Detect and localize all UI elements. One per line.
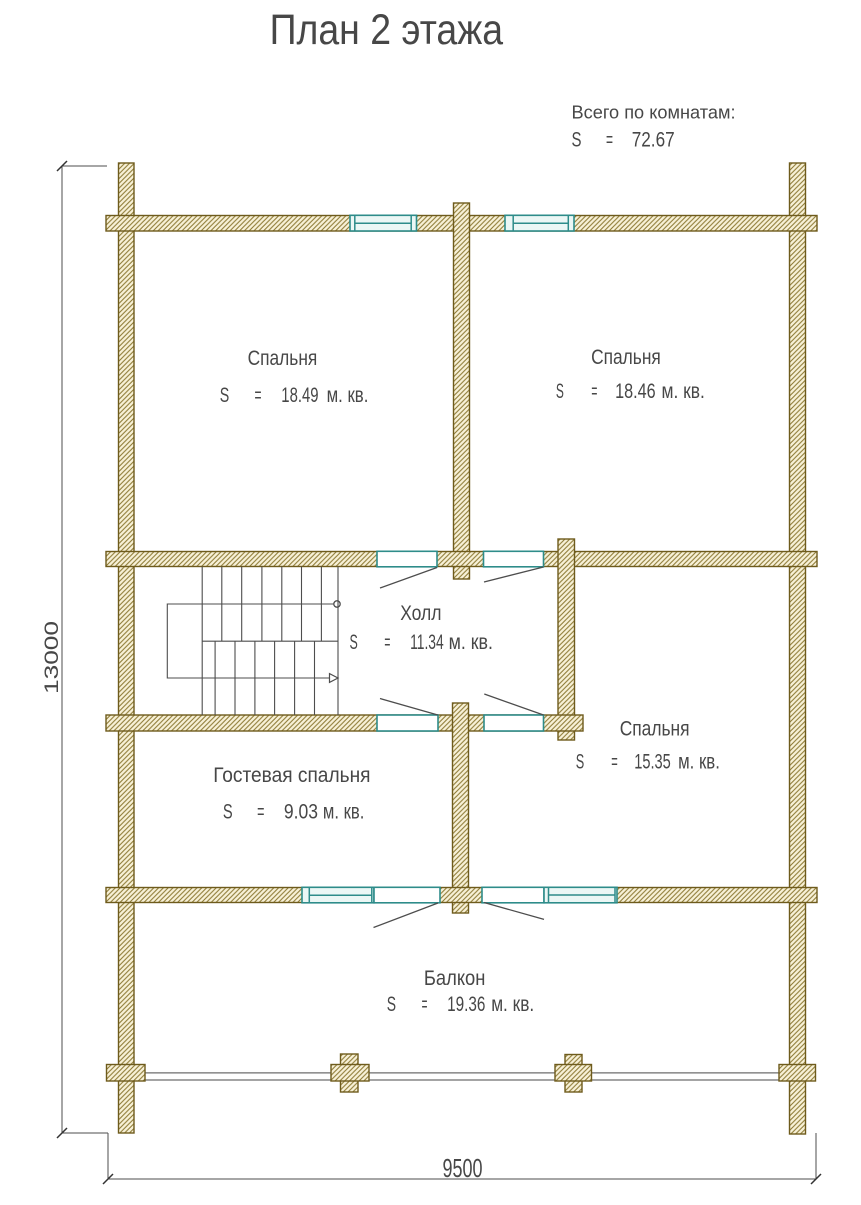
svg-text:18.49: 18.49 xyxy=(281,384,318,407)
svg-text:Балкон: Балкон xyxy=(424,967,486,990)
svg-text:Спальня: Спальня xyxy=(591,346,661,369)
svg-text:=: = xyxy=(384,631,390,654)
svg-text:S: S xyxy=(572,128,582,151)
svg-text:=: = xyxy=(611,751,618,774)
svg-text:=: = xyxy=(591,380,597,403)
svg-text:м. кв.: м. кв. xyxy=(323,801,365,824)
svg-text:м. кв.: м. кв. xyxy=(327,384,369,407)
svg-text:Спальня: Спальня xyxy=(248,347,318,370)
svg-text:18.46: 18.46 xyxy=(615,380,656,403)
svg-text:Всего по комнатам:: Всего по комнатам: xyxy=(572,101,736,122)
svg-text:S: S xyxy=(350,631,358,654)
svg-text:S: S xyxy=(220,384,230,407)
svg-text:м. кв.: м. кв. xyxy=(678,751,720,774)
svg-text:Спальня: Спальня xyxy=(620,718,690,741)
svg-text:13000: 13000 xyxy=(42,621,63,694)
svg-text:м. кв.: м. кв. xyxy=(491,993,534,1016)
svg-text:м. кв.: м. кв. xyxy=(662,380,705,403)
svg-text:72.67: 72.67 xyxy=(632,128,675,151)
svg-text:=: = xyxy=(257,801,264,824)
svg-text:19.36: 19.36 xyxy=(447,993,485,1016)
svg-text:=: = xyxy=(422,993,428,1016)
svg-text:S: S xyxy=(576,751,585,774)
svg-text:=: = xyxy=(255,384,262,407)
svg-text:м. кв.: м. кв. xyxy=(449,631,493,654)
svg-text:11.34: 11.34 xyxy=(410,631,444,654)
svg-text:=: = xyxy=(606,128,613,151)
svg-text:S: S xyxy=(387,993,396,1016)
svg-text:Холл: Холл xyxy=(400,602,441,625)
svg-text:S: S xyxy=(556,380,564,403)
svg-text:9.03: 9.03 xyxy=(284,801,318,824)
svg-text:9500: 9500 xyxy=(443,1153,483,1183)
svg-text:15.35: 15.35 xyxy=(634,751,671,774)
svg-text:S: S xyxy=(223,801,233,824)
svg-text:План 2 этажа: План 2 этажа xyxy=(270,7,504,54)
svg-text:Гостевая спальня: Гостевая спальня xyxy=(213,764,370,787)
